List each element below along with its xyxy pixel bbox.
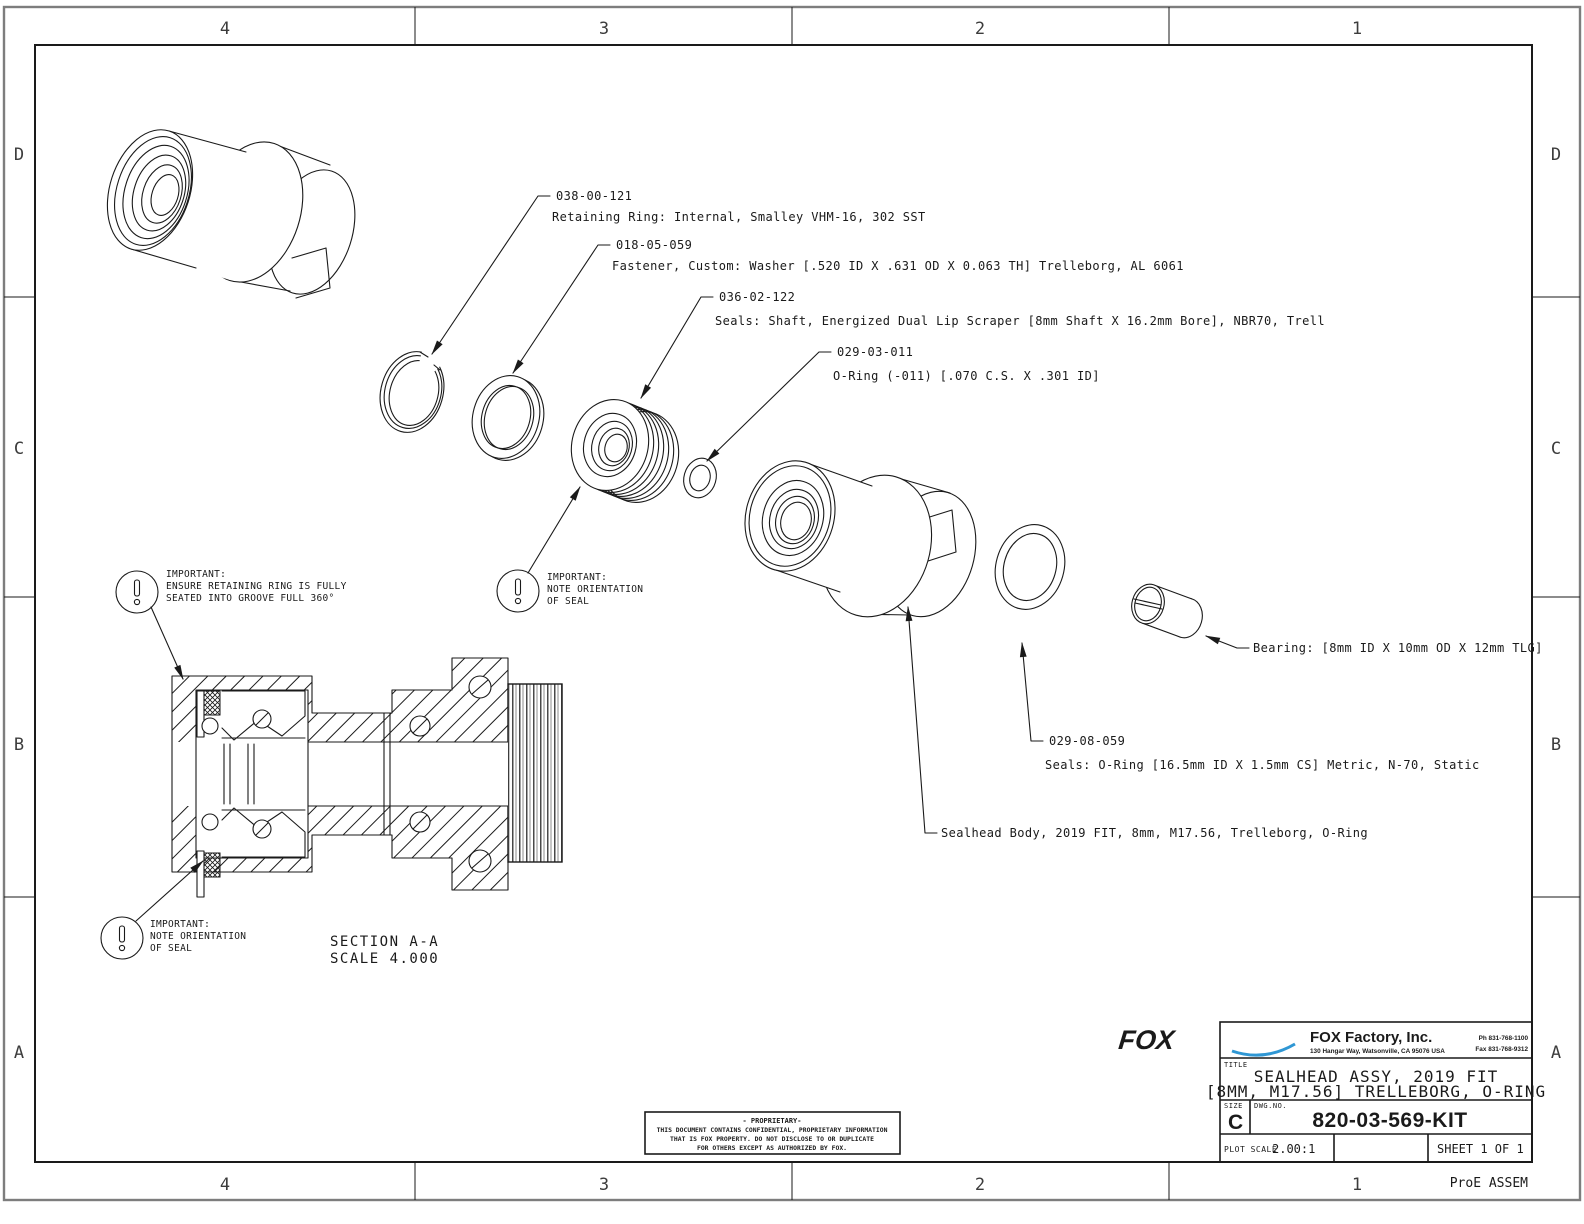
zone-label-right-d: D (1551, 145, 1561, 165)
proprietary-line1: - PROPRIETARY- (742, 1117, 801, 1125)
proprietary-line2: THIS DOCUMENT CONTAINS CONFIDENTIAL, PRO… (657, 1126, 888, 1134)
drawing-title-line2: [8MM, M17.56] TRELLEBORG, O-RING (1206, 1082, 1546, 1101)
leader-bearing (1206, 636, 1249, 648)
title-label: TITLE (1224, 1061, 1248, 1069)
section-view (172, 658, 562, 897)
engineering-drawing-sheet: 4 3 2 1 4 3 2 1 D C B A D C B A ProE ASS… (0, 0, 1584, 1224)
note-seal-orientation-exploded: IMPORTANT: NOTE ORIENTATION OF SEAL (497, 487, 643, 612)
leader-small-o-ring (707, 352, 831, 461)
callout-scraper-desc: Seals: Shaft, Energized Dual Lip Scraper… (715, 314, 1325, 328)
proprietary-line3: THAT IS FOX PROPERTY. DO NOT DISCLOSE TO… (670, 1135, 874, 1143)
part-washer (463, 368, 554, 469)
zone-label-bottom-2: 2 (975, 1175, 985, 1195)
callout-sealhead-body-desc: Sealhead Body, 2019 FIT, 8mm, M17.56, Tr… (941, 826, 1368, 840)
size-label: SIZE (1224, 1102, 1243, 1110)
section-title: SECTION A-A (330, 934, 439, 950)
leader-scraper (641, 297, 713, 398)
size-value: C (1228, 1111, 1244, 1134)
leader-washer (513, 245, 610, 373)
zone-label-top-1: 1 (1352, 19, 1362, 39)
zone-label-top-4: 4 (220, 19, 230, 39)
plot-scale-label: PLOT SCALE (1224, 1145, 1277, 1154)
note-line: OF SEAL (150, 943, 192, 954)
company-name: FOX Factory, Inc. (1310, 1029, 1432, 1046)
leader-retaining-ring (432, 196, 550, 354)
zone-label-left-a: A (14, 1043, 24, 1063)
sheet-number: SHEET 1 OF 1 (1437, 1142, 1524, 1156)
note-line: NOTE ORIENTATION (150, 931, 246, 942)
zone-label-top-2: 2 (975, 19, 985, 39)
note-line: SEATED INTO GROOVE FULL 360° (166, 593, 335, 604)
company-address: 130 Hangar Way, Watsonville, CA 95076 US… (1310, 1048, 1445, 1055)
note-line: IMPORTANT: (547, 572, 607, 583)
section-seal-bottom (204, 853, 220, 877)
zone-label-bottom-1: 1 (1352, 1175, 1362, 1195)
note-retaining-ring: IMPORTANT: ENSURE RETAINING RING IS FULL… (116, 569, 347, 679)
zone-label-left-b: B (14, 735, 24, 755)
zone-label-top-3: 3 (599, 19, 609, 39)
zone-label-left-c: C (14, 439, 24, 459)
proprietary-notice: - PROPRIETARY- THIS DOCUMENT CONTAINS CO… (645, 1112, 900, 1154)
callout-large-o-ring-desc: Seals: O-Ring [16.5mm ID X 1.5mm CS] Met… (1045, 758, 1480, 772)
part-large-o-ring (985, 516, 1074, 617)
leader-large-o-ring (1022, 643, 1043, 741)
part-sealhead-body (732, 450, 990, 630)
callout-scraper-partno: 036-02-122 (719, 290, 795, 304)
proprietary-line4: FOR OTHERS EXCEPT AS AUTHORIZED BY FOX. (697, 1144, 847, 1152)
callout-small-o-ring-desc: O-Ring (-011) [.070 C.S. X .301 ID] (833, 369, 1100, 383)
note-line: OF SEAL (547, 596, 589, 607)
company-phone: Ph 831-768-1100 (1479, 1035, 1529, 1042)
section-label: SECTION A-A SCALE 4.000 (330, 934, 439, 967)
callout-retaining-ring-desc: Retaining Ring: Internal, Smalley VHM-16… (552, 210, 926, 224)
company-fax: Fax 831-768-9312 (1475, 1046, 1528, 1053)
section-washer-bottom (197, 851, 204, 897)
isometric-assembled-view (93, 119, 370, 306)
callout-large-o-ring-partno: 029-08-059 (1049, 734, 1125, 748)
section-seal-top (204, 691, 220, 715)
leader-sealhead-body (908, 607, 937, 833)
zone-label-bottom-4: 4 (220, 1175, 230, 1195)
zone-label-bottom-3: 3 (599, 1175, 609, 1195)
plot-scale-value: 2.00:1 (1272, 1142, 1315, 1156)
callout-texts: 038-00-121 Retaining Ring: Internal, Sma… (552, 189, 1543, 840)
drawing-canvas: 4 3 2 1 4 3 2 1 D C B A D C B A ProE ASS… (0, 0, 1584, 1224)
callout-washer-partno: 018-05-059 (616, 238, 692, 252)
note-line: IMPORTANT: (166, 569, 226, 580)
title-block: FOX FOX Factory, Inc. 130 Hangar Way, Wa… (1117, 1022, 1546, 1162)
section-scale: SCALE 4.000 (330, 951, 439, 967)
callout-bearing-desc: Bearing: [8mm ID X 10mm OD X 12mm TLG] (1253, 641, 1543, 655)
callout-small-o-ring-partno: 029-03-011 (837, 345, 913, 359)
zone-label-right-c: C (1551, 439, 1561, 459)
part-small-o-ring (679, 454, 721, 501)
part-scraper-seal (561, 390, 689, 511)
note-line: IMPORTANT: (150, 919, 210, 930)
callout-retaining-ring-partno: 038-00-121 (556, 189, 632, 203)
svg-text:FOX: FOX (1117, 1024, 1178, 1055)
note-line: ENSURE RETAINING RING IS FULLY (166, 581, 347, 592)
note-line: NOTE ORIENTATION (547, 584, 643, 595)
fox-logo: FOX (1117, 1024, 1295, 1055)
part-bearing (1127, 580, 1207, 641)
zone-label-right-b: B (1551, 735, 1561, 755)
section-threads (508, 684, 562, 862)
dwg-no-value: 820-03-569-KIT (1312, 1109, 1467, 1132)
exploded-view (371, 343, 1207, 642)
zone-label-left-d: D (14, 145, 24, 165)
callout-washer-desc: Fastener, Custom: Washer [.520 ID X .631… (612, 259, 1184, 273)
dwg-no-label: DWG.NO. (1254, 1102, 1287, 1110)
note-seal-orientation-section: IMPORTANT: NOTE ORIENTATION OF SEAL (101, 861, 246, 959)
footer-note: ProE ASSEM (1450, 1176, 1528, 1191)
zone-label-right-a: A (1551, 1043, 1561, 1063)
part-retaining-ring (371, 343, 453, 440)
